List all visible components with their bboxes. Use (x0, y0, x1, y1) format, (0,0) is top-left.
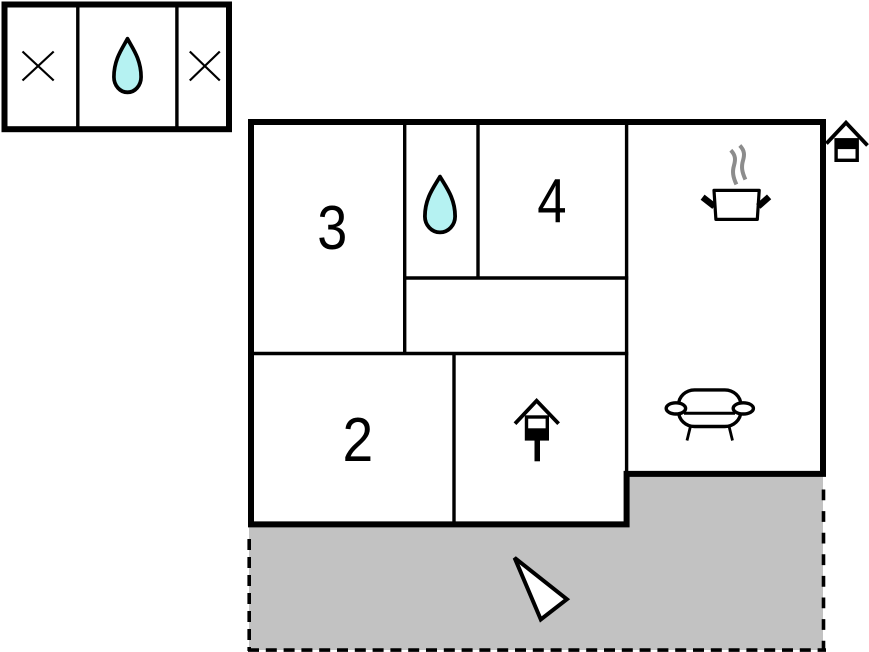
svg-text:4: 4 (537, 167, 566, 236)
svg-text:3: 3 (317, 193, 347, 262)
svg-text:2: 2 (342, 406, 373, 475)
